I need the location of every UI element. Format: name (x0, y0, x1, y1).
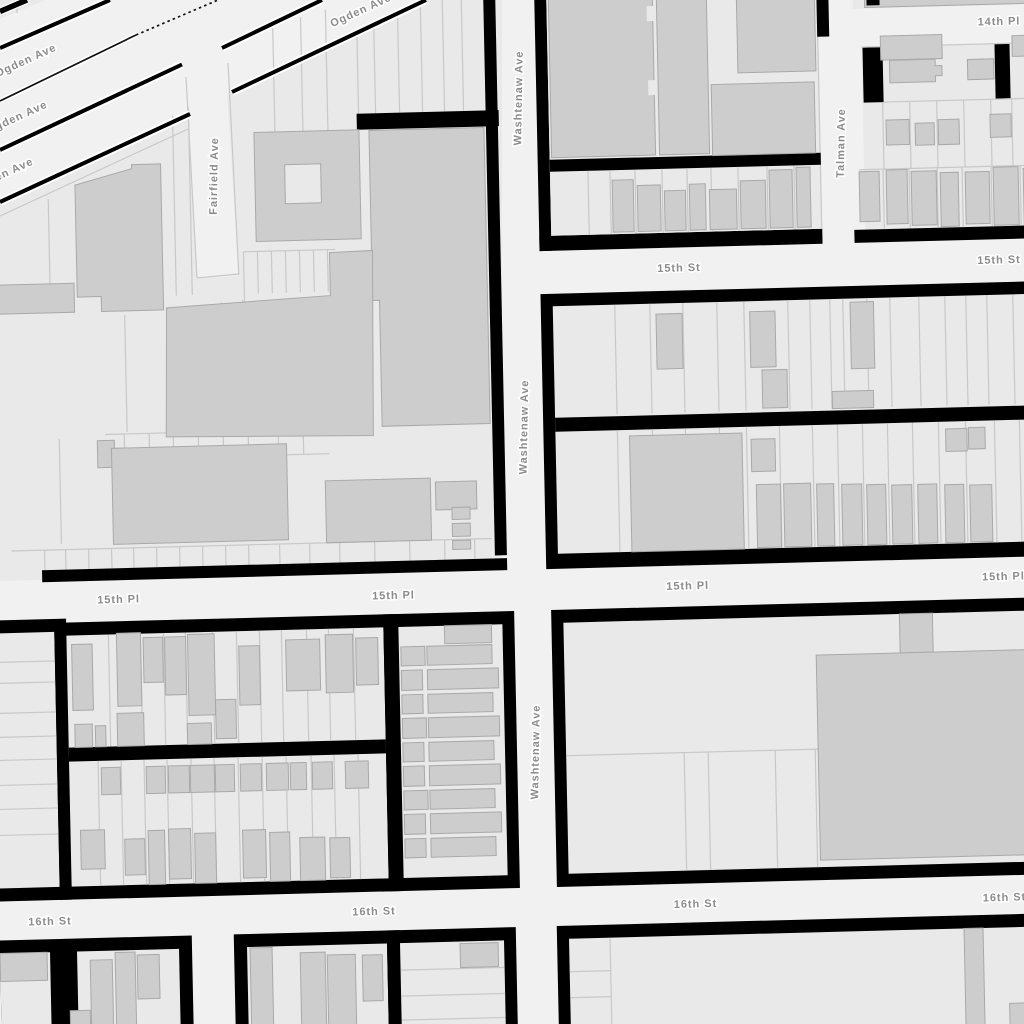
svg-text:16th St: 16th St (674, 898, 718, 911)
svg-text:Fairfield Ave: Fairfield Ave (208, 137, 221, 215)
svg-text:15th Pl: 15th Pl (372, 589, 415, 602)
svg-text:Washtenaw Ave: Washtenaw Ave (512, 50, 526, 145)
svg-text:15th Pl: 15th Pl (666, 580, 709, 593)
svg-text:15th St: 15th St (977, 254, 1021, 267)
svg-text:16th St: 16th St (28, 915, 72, 928)
svg-text:16th St: 16th St (352, 905, 396, 918)
svg-text:Talman Ave: Talman Ave (835, 108, 848, 178)
svg-text:Washtenaw Ave: Washtenaw Ave (518, 379, 532, 474)
svg-text:15th St: 15th St (657, 262, 701, 275)
svg-text:15th Pl: 15th Pl (982, 570, 1024, 583)
svg-text:15th Pl: 15th Pl (97, 593, 140, 606)
svg-text:14th Pl: 14th Pl (977, 15, 1020, 28)
svg-text:Washtenaw Ave: Washtenaw Ave (529, 704, 543, 799)
svg-text:16th St: 16th St (983, 891, 1024, 904)
